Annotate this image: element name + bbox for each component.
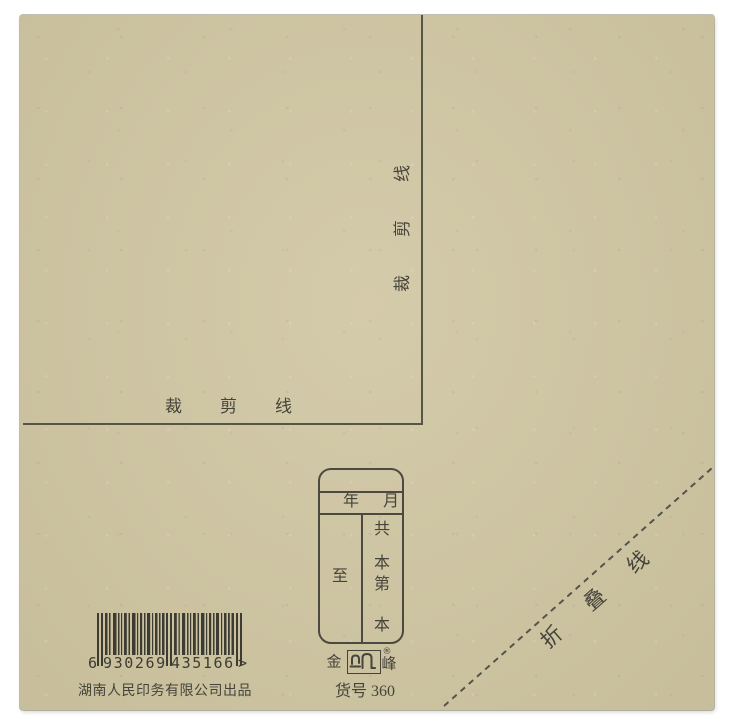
brand-mark-box: [347, 650, 381, 674]
fold-line-label: 折 叠 线: [537, 548, 653, 652]
cut-line-label-vertical: 线 剪 裁: [394, 165, 411, 292]
product-code-text: 货号 360: [335, 677, 395, 701]
cut-label-char: 裁: [165, 398, 182, 415]
kraft-paper-sheet: 线 剪 裁 裁 剪 线 年 月 至 共 本 第 本 金: [20, 15, 714, 710]
stamp-number-label: 第: [374, 577, 390, 593]
brand-char-right: 峰: [381, 653, 396, 674]
scanned-image-canvas: 线 剪 裁 裁 剪 线 年 月 至 共 本 第 本 金: [0, 0, 736, 727]
brand-char-left: 金: [326, 651, 341, 672]
barcode: 6 930269 435166 >: [88, 613, 273, 675]
cut-label-char: 裁: [394, 275, 411, 292]
cut-line-horizontal: [23, 423, 423, 425]
cut-label-char: 线: [275, 398, 292, 415]
stamp-to-label: 至: [332, 569, 348, 585]
brand-logo-row: 金 ® 峰: [325, 648, 425, 678]
fold-label-char: 线: [623, 548, 653, 578]
mountain-mark-icon: [348, 651, 379, 672]
stamp-divider-vertical: [361, 513, 363, 642]
cut-line-label-horizontal: 裁 剪 线: [165, 398, 292, 415]
stamp-volume-unit-bottom: 本: [374, 618, 390, 634]
barcode-digit-group: 930269: [103, 654, 167, 672]
book-label-stamp-box: 年 月 至 共 本 第 本: [318, 468, 404, 644]
cut-label-char: 剪: [220, 398, 237, 415]
fold-label-char: 折: [537, 623, 567, 653]
barcode-lead-digit: 6: [88, 654, 99, 672]
fold-label-char: 叠: [580, 585, 610, 615]
cut-line-vertical: [421, 15, 423, 425]
stamp-year-label: 年: [343, 494, 359, 510]
stamp-month-label: 月: [383, 494, 399, 510]
cut-label-char: 剪: [394, 220, 411, 237]
manufacturer-text: 湖南人民印务有限公司出品: [78, 680, 268, 700]
fold-line-dashed: [443, 466, 714, 707]
barcode-end-mark: >: [238, 654, 249, 672]
barcode-digit-group: 435166: [171, 654, 235, 672]
cut-label-char: 线: [394, 165, 411, 182]
stamp-volume-unit-top: 本: [374, 556, 390, 572]
stamp-total-label: 共: [374, 522, 390, 538]
